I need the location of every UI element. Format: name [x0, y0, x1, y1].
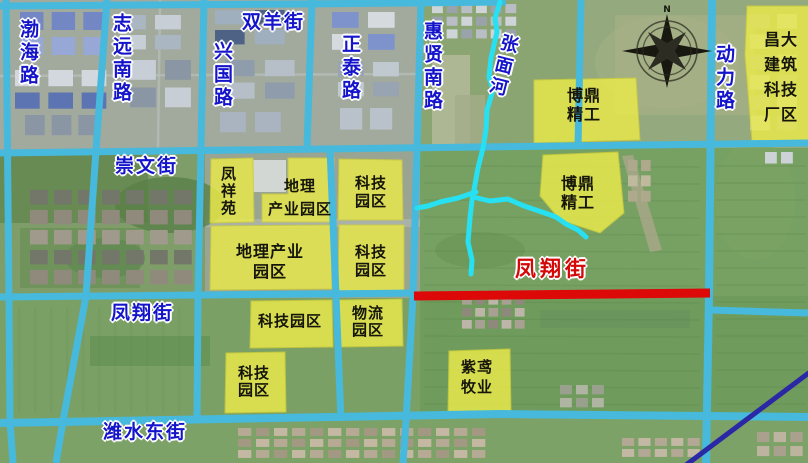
area-label-line: 凤 [221, 166, 237, 183]
area-label-keji-park-d: 科技园区 [238, 365, 270, 399]
street-label-xingguo-road: 兴国路 [211, 41, 233, 110]
area-label-line: 精工 [567, 105, 601, 124]
area-label-dili-industrial-park-north: 地理产业园区 [268, 175, 332, 221]
area-label-boding-jinggong-south: 博鼎精工 [561, 174, 595, 212]
street-label-huixian-south-road: 惠贤南路 [421, 21, 443, 113]
area-label-dili-industrial-park-south: 地理产业园区 [236, 242, 304, 282]
area-label-changda-construction: 昌大建筑科技厂区 [764, 27, 798, 127]
area-label-line: 博鼎 [561, 174, 595, 193]
area-label-line: 博鼎 [567, 86, 601, 105]
street-label-fengxiang-street-planned: 凤翔街 [515, 257, 590, 281]
area-label-line: 园区 [236, 262, 304, 282]
area-label-wuliu-park: 物流园区 [352, 305, 384, 339]
area-label-line: 地理产业 [236, 242, 304, 262]
area-label-line: 园区 [352, 322, 384, 339]
area-label-ziyuan-muye: 紫鸢牧业 [461, 357, 493, 397]
area-label-line: 精工 [561, 193, 595, 212]
area-label-fengxiang-yuan: 凤祥苑 [221, 166, 237, 217]
area-label-line: 建筑 [764, 52, 798, 77]
street-label-weishui-east-street: 潍水东街 [103, 421, 187, 443]
area-label-line: 园区 [355, 261, 387, 279]
area-label-boding-jinggong-north: 博鼎精工 [567, 86, 601, 124]
area-label-line: 物流 [352, 305, 384, 322]
area-label-line: 科技 [355, 174, 387, 192]
area-label-line: 牧业 [461, 377, 493, 397]
area-label-line: 地理 [268, 175, 332, 198]
area-label-line: 苑 [221, 200, 237, 217]
street-label-zhiyuan-south-road: 志远南路 [110, 13, 132, 105]
satellite-map: N 渤海路志远南路兴国路双羊街正泰路惠贤南路张面河动力路崇文街凤翔街凤翔街潍水东… [0, 0, 808, 463]
street-label-shuangyang-street: 双羊街 [242, 11, 305, 33]
map-labels-layer: 渤海路志远南路兴国路双羊街正泰路惠贤南路张面河动力路崇文街凤翔街凤翔街潍水东街博… [0, 0, 808, 463]
street-label-bohai-road: 渤海路 [17, 19, 39, 88]
area-label-line: 紫鸢 [461, 357, 493, 377]
area-label-line: 科技 [764, 77, 798, 102]
area-label-keji-park-b: 科技园区 [355, 243, 387, 279]
street-label-chongwen-street: 崇文街 [115, 155, 178, 177]
area-label-line: 科技园区 [258, 313, 322, 329]
area-label-line: 祥 [221, 183, 237, 200]
area-label-line: 园区 [355, 192, 387, 210]
street-label-fengxiang-street-west: 凤翔街 [111, 302, 174, 324]
area-label-line: 厂区 [764, 102, 798, 127]
street-label-zhangmian-river: 张面河 [483, 31, 519, 100]
area-label-line: 产业园区 [268, 198, 332, 221]
area-label-line: 科技 [355, 243, 387, 261]
area-label-line: 园区 [238, 382, 270, 399]
street-label-zhengtai-road: 正泰路 [339, 34, 361, 103]
street-label-dongli-road: 动力路 [713, 44, 735, 113]
area-label-line: 科技 [238, 365, 270, 382]
area-label-keji-park-a: 科技园区 [355, 174, 387, 210]
area-label-line: 昌大 [764, 27, 798, 52]
area-label-keji-park-c: 科技园区 [258, 313, 322, 329]
